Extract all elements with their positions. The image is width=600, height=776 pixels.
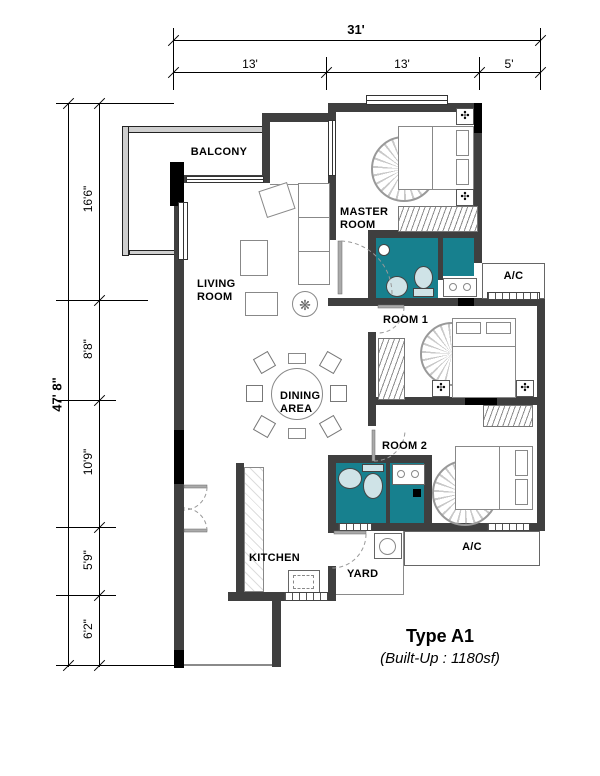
wall-kitchen-yard-upper: [328, 463, 336, 533]
washing-machine-drum-icon: [379, 538, 396, 555]
dim-extension-line: [56, 595, 116, 596]
dim-label-overall-height: 47' 8": [50, 360, 65, 430]
window-living-left: [178, 202, 188, 260]
wardrobe: [378, 338, 405, 400]
ceiling-fan-icon: ✣: [516, 380, 534, 397]
dim-label-overall-width: 31': [336, 22, 376, 37]
ceiling-fan-icon: ✣: [456, 189, 474, 206]
wall-kitchen-bottom: [228, 592, 284, 601]
dining-chair: [253, 351, 276, 374]
balcony-glass-wall-bottom: [129, 250, 175, 255]
sink-icon: [386, 276, 408, 297]
dim-line-top-overall: [173, 40, 540, 41]
bed-linen-line: [432, 126, 433, 190]
room-label-living-line2: ROOM: [197, 291, 232, 303]
bath2-heater-icon: [413, 489, 421, 497]
dim-label-segment: 10'9": [81, 432, 95, 492]
room-label-master-line1: MASTER: [340, 206, 388, 218]
room-label-kitchen: KITCHEN: [249, 552, 300, 564]
room-label-room1: ROOM 1: [383, 314, 428, 326]
bed-linen-line: [452, 346, 516, 347]
dining-chair: [288, 428, 306, 439]
wall-right-outer: [537, 299, 545, 531]
coffee-table: [240, 240, 268, 276]
floor-plan-canvas: 31' 13' 13' 5' 47' 8" 16'6" 8'8" 10'9" 5…: [0, 0, 600, 776]
master-bathroom-divider: [438, 238, 443, 280]
ceiling-fan-icon: ✣: [432, 380, 450, 397]
vanity-basin-icon: [397, 470, 405, 478]
balcony-glass-wall-top: [122, 126, 267, 133]
plant-icon: ❋: [292, 291, 318, 317]
sink-icon: [338, 468, 362, 489]
pillow: [515, 450, 528, 476]
dim-extension-line: [56, 103, 174, 104]
vanity-basin-icon: [463, 283, 471, 291]
room-label-room2: ROOM 2: [382, 440, 427, 452]
room-label-dining-line1: DINING: [280, 390, 320, 402]
sofa: [298, 183, 330, 285]
wall-spine-upper: [368, 238, 376, 306]
window-master-left: [328, 120, 336, 176]
wall-terrace-right: [272, 601, 281, 667]
column-left-top: [170, 162, 184, 206]
column-room-divider: [465, 397, 497, 405]
dim-line-left-overall: [68, 103, 69, 667]
sliding-door-balcony: [186, 176, 264, 183]
wall-kitchen-left: [236, 463, 244, 601]
column-left-bottom: [174, 650, 184, 668]
wall-alcove-left: [262, 113, 270, 183]
toilet-icon: [363, 473, 383, 499]
window-kitchen-bottom: [284, 592, 328, 601]
dining-chair: [253, 415, 276, 438]
wall-bath2-right: [424, 463, 432, 531]
vanity-basin-icon: [449, 283, 457, 291]
ac-ledge-bottom-label: A/C: [404, 541, 540, 553]
wardrobe: [483, 405, 533, 427]
dim-line-top-segments: [173, 72, 540, 73]
vanity-basin-icon: [411, 470, 419, 478]
wall-bath2-top: [328, 455, 432, 463]
wall-kitchen-yard-lower: [328, 566, 336, 601]
pillow: [456, 130, 469, 156]
pillow: [486, 322, 511, 334]
plan-builtup-subtitle: (Built-Up : 1180sf): [330, 650, 550, 667]
dim-line-left-segments: [99, 103, 100, 667]
louvre-window-room2: [487, 523, 530, 531]
tv-cabinet: [245, 292, 278, 316]
armchair: [258, 182, 295, 218]
dim-label-segment: 5': [494, 57, 524, 71]
column-left-mid: [174, 430, 184, 484]
dim-label-segment: 6'2": [81, 599, 95, 659]
terrace-bottom-line: [184, 664, 272, 666]
dim-extension-line: [56, 300, 148, 301]
pillow: [515, 479, 528, 505]
dining-chair: [319, 351, 342, 374]
wall-alcove-top: [262, 113, 336, 122]
room-label-balcony: BALCONY: [179, 146, 259, 158]
dim-extension-line: [56, 400, 116, 401]
balcony-glass-wall-left: [122, 126, 129, 256]
column-room1-top: [458, 298, 474, 306]
ac-ledge-top-label: A/C: [482, 270, 545, 282]
room-label-living-line1: LIVING: [197, 278, 235, 290]
master-bathroom-shower: [443, 238, 474, 276]
dim-extension-line: [56, 527, 116, 528]
shower-head-icon: [378, 244, 390, 256]
dim-extension-line: [173, 28, 174, 90]
room-label-dining-line2: AREA: [280, 403, 312, 415]
dim-label-segment: 13': [230, 57, 270, 71]
dining-chair: [288, 353, 306, 364]
pillow: [456, 159, 469, 185]
yard-bottom-line: [336, 594, 404, 595]
plan-title: Type A1: [360, 626, 520, 647]
toilet-tank-icon: [362, 464, 384, 472]
bed-linen-line: [499, 446, 500, 510]
dim-label-segment: 13': [382, 57, 422, 71]
pillow: [456, 322, 481, 334]
dim-label-segment: 5'9": [81, 530, 95, 590]
toilet-tank-icon: [413, 288, 434, 297]
louvre-ac-top: [487, 292, 540, 300]
sofa-cushion-line: [298, 217, 330, 218]
bathroom2-divider: [386, 463, 390, 523]
room-label-yard: YARD: [347, 568, 378, 580]
dim-label-segment: 8'8": [81, 319, 95, 379]
column-master-right: [474, 103, 482, 133]
wardrobe: [398, 206, 478, 232]
dining-chair: [330, 385, 347, 402]
window-master-top: [366, 95, 448, 105]
dining-chair: [319, 415, 342, 438]
kitchen-counter: [244, 467, 264, 592]
sofa-cushion-line: [298, 251, 330, 252]
louvre-window-bath2: [338, 523, 372, 531]
ceiling-fan-icon: ✣: [456, 108, 474, 125]
dining-chair: [246, 385, 263, 402]
dim-extension-line: [540, 28, 541, 90]
room-label-master-line2: ROOM: [340, 219, 375, 231]
toilet-icon: [414, 266, 433, 289]
kitchen-sink-basin-icon: [293, 575, 314, 589]
wall-spine-mid: [368, 332, 376, 426]
dim-label-segment: 16'6": [81, 169, 95, 229]
